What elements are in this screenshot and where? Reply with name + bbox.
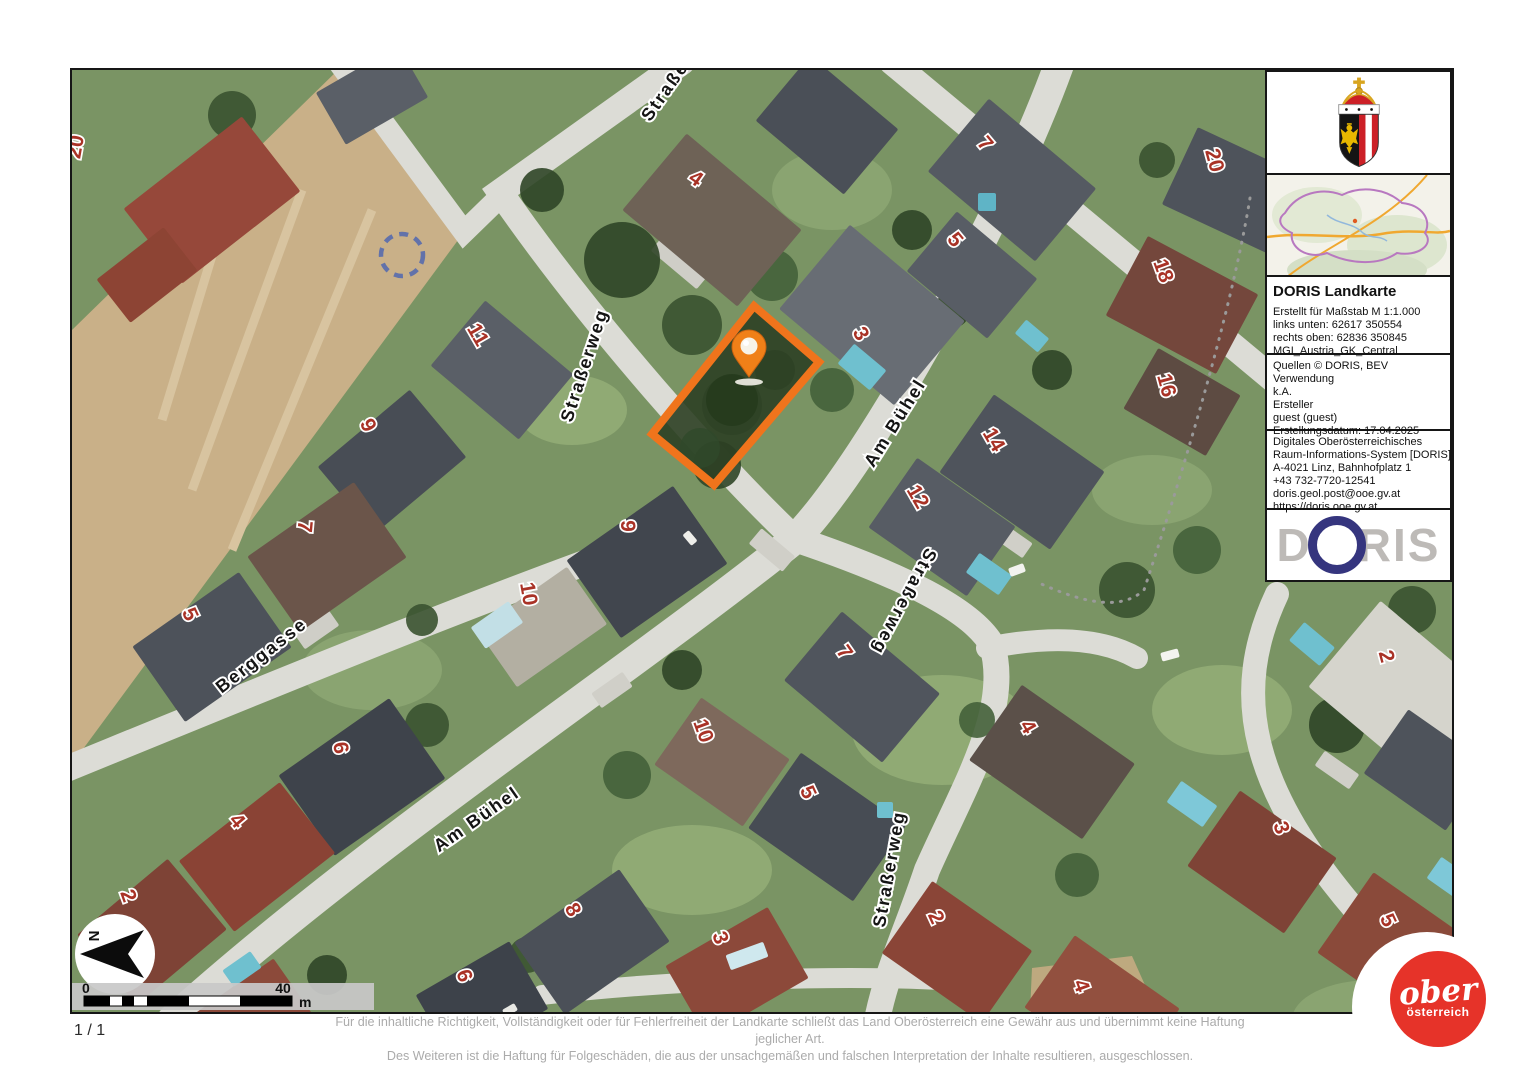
scale-bar: 0 40 m [72, 980, 374, 1010]
tree [520, 168, 564, 212]
coat-of-arms-panel [1265, 70, 1452, 175]
tree [1099, 562, 1155, 618]
doris-logo-ris: RIS [1358, 522, 1441, 568]
tree [603, 751, 651, 799]
source-info-panel: Quellen © DORIS, BEVVerwendungk.A.Erstel… [1265, 353, 1452, 431]
info-line: doris.geol.post@ooe.gv.at [1273, 488, 1444, 501]
source-lines: Quellen © DORIS, BEVVerwendungk.A.Erstel… [1273, 360, 1444, 438]
tree [810, 368, 854, 412]
doris-logo-d: D [1277, 522, 1312, 568]
info-line: k.A. [1273, 386, 1444, 399]
north-label: N [86, 931, 103, 942]
info-line: A-4021 Linz, Bahnhofplatz 1 [1273, 462, 1444, 475]
contact-lines: Digitales OberösterreichischesRaum-Infor… [1273, 436, 1444, 514]
map-viewport[interactable]: N 0 40 m StraßerwegAm BühelBerggasseAm B… [70, 68, 1454, 1014]
upper-austria-coat-of-arms-icon [1330, 75, 1388, 171]
info-line: Raum-Informations-System [DORIS] [1273, 449, 1444, 462]
house-number: 9 [616, 520, 639, 532]
info-line: links unten: 62617 350554 [1273, 319, 1444, 332]
oberoesterreich-logo-script: ober [1398, 976, 1478, 1007]
oberoesterreich-logo: ober österreich [1390, 951, 1486, 1047]
tree [1055, 853, 1099, 897]
house-number: 10 [515, 580, 542, 607]
disclaimer-line-2: Des Weiteren ist die Haftung für Folgesc… [330, 1048, 1250, 1065]
doris-logo-panel: D RIS [1265, 508, 1452, 582]
contact-info-panel: Digitales OberösterreichischesRaum-Infor… [1265, 429, 1452, 510]
map-title: DORIS Landkarte [1273, 283, 1444, 300]
scale-unit: m [299, 994, 311, 1010]
overview-map [1267, 175, 1450, 277]
tree [1032, 350, 1072, 390]
overview-map-panel [1265, 173, 1452, 277]
aerial-map: N 0 40 m StraßerwegAm BühelBerggasseAm B… [72, 70, 1452, 1012]
tree [584, 222, 660, 298]
page: N 0 40 m StraßerwegAm BühelBerggasseAm B… [0, 0, 1528, 1080]
info-line: +43 732-7720-12541 [1273, 475, 1444, 488]
lawn [1092, 455, 1212, 525]
info-line: Digitales Oberösterreichisches [1273, 436, 1444, 449]
pool [978, 193, 996, 211]
info-line: Verwendung [1273, 373, 1444, 386]
tree [662, 295, 722, 355]
tree [1139, 142, 1175, 178]
doris-logo: D RIS [1277, 516, 1441, 574]
info-line: Erstellt für Maßstab M 1:1.000 [1273, 306, 1444, 319]
map-meta-lines: Erstellt für Maßstab M 1:1.000links unte… [1273, 306, 1444, 358]
house-number: 7 [293, 520, 317, 534]
map-info-sidebar: DORIS Landkarte Erstellt für Maßstab M 1… [1265, 70, 1452, 582]
disclaimer-line-1: Für die inhaltliche Richtigkeit, Vollstä… [330, 1014, 1250, 1048]
tree [1173, 526, 1221, 574]
disclaimer: Für die inhaltliche Richtigkeit, Vollstä… [330, 1014, 1250, 1065]
tree [892, 210, 932, 250]
tree [406, 604, 438, 636]
map-meta-panel: DORIS Landkarte Erstellt für Maßstab M 1… [1265, 275, 1452, 355]
page-indicator: 1 / 1 [74, 1022, 105, 1040]
info-line: Ersteller [1273, 399, 1444, 412]
tree [662, 650, 702, 690]
scale-end: 40 [275, 980, 291, 996]
info-line: Quellen © DORIS, BEV [1273, 360, 1444, 373]
doris-logo-ring-icon [1308, 516, 1366, 574]
info-line: guest (guest) [1273, 412, 1444, 425]
info-line: rechts oben: 62836 350845 [1273, 332, 1444, 345]
scale-start: 0 [82, 980, 90, 996]
